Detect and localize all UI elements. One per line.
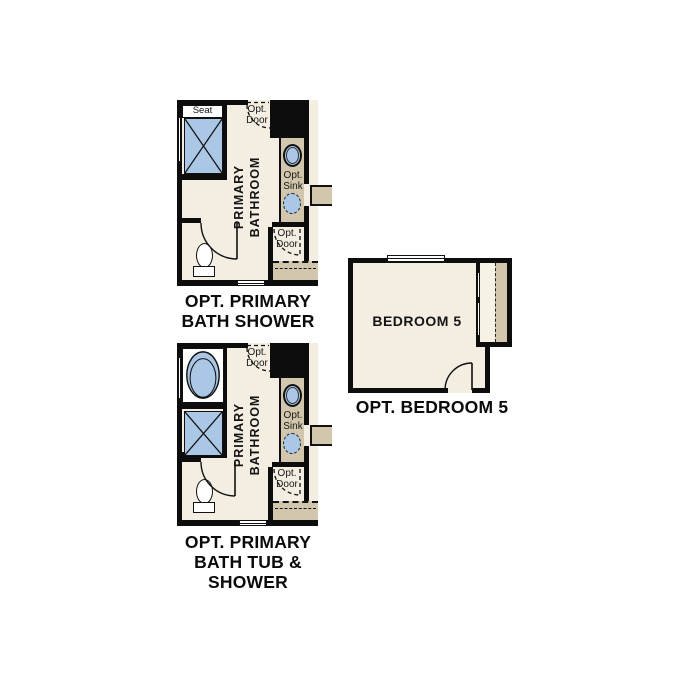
caption-line: BATH TUB &	[167, 553, 329, 573]
room-name-primary-bathroom: PRIMARY BATHROOM	[231, 375, 265, 495]
opt-door-swing-arc	[274, 229, 300, 255]
plan-caption: OPT. PRIMARY BATH SHOWER	[167, 292, 329, 332]
label-line: PRIMARY	[232, 165, 246, 229]
caption-line: OPT. PRIMARY	[167, 292, 329, 312]
room-name-primary-bathroom: PRIMARY BATHROOM	[231, 137, 265, 257]
room-name-bedroom-5: BEDROOM 5	[362, 313, 472, 329]
plan-caption: OPT. PRIMARY BATH TUB & SHOWER	[167, 533, 329, 592]
door-swing-arc	[201, 462, 235, 496]
caption-line: SHOWER	[167, 573, 329, 593]
label-line: BEDROOM 5	[372, 313, 461, 329]
floorplan-opt-bedroom-5: BEDROOM 5 OPT. BEDROOM 5	[348, 252, 518, 432]
floorplan-opt-primary-bath-tub-shower: Opt. Sink Opt. Door Opt. Door PRIMARY BA…	[177, 343, 332, 613]
caption-line: OPT. PRIMARY	[167, 533, 329, 553]
caption-line: OPT. BEDROOM 5	[348, 398, 516, 418]
opt-door-swing-arc	[247, 105, 270, 128]
door-swing-arc	[445, 363, 472, 390]
opt-door-swing-arc	[247, 348, 270, 371]
label-line: PRIMARY	[232, 403, 246, 467]
label-line: BATHROOM	[248, 157, 262, 238]
plan-caption: OPT. BEDROOM 5	[348, 398, 516, 418]
opt-door-swing-arc	[274, 469, 300, 495]
floorplan-opt-primary-bath-shower: Seat Opt. Sink Opt. Door Opt. Door	[177, 100, 332, 340]
caption-line: BATH SHOWER	[167, 312, 329, 332]
label-line: BATHROOM	[248, 395, 262, 476]
